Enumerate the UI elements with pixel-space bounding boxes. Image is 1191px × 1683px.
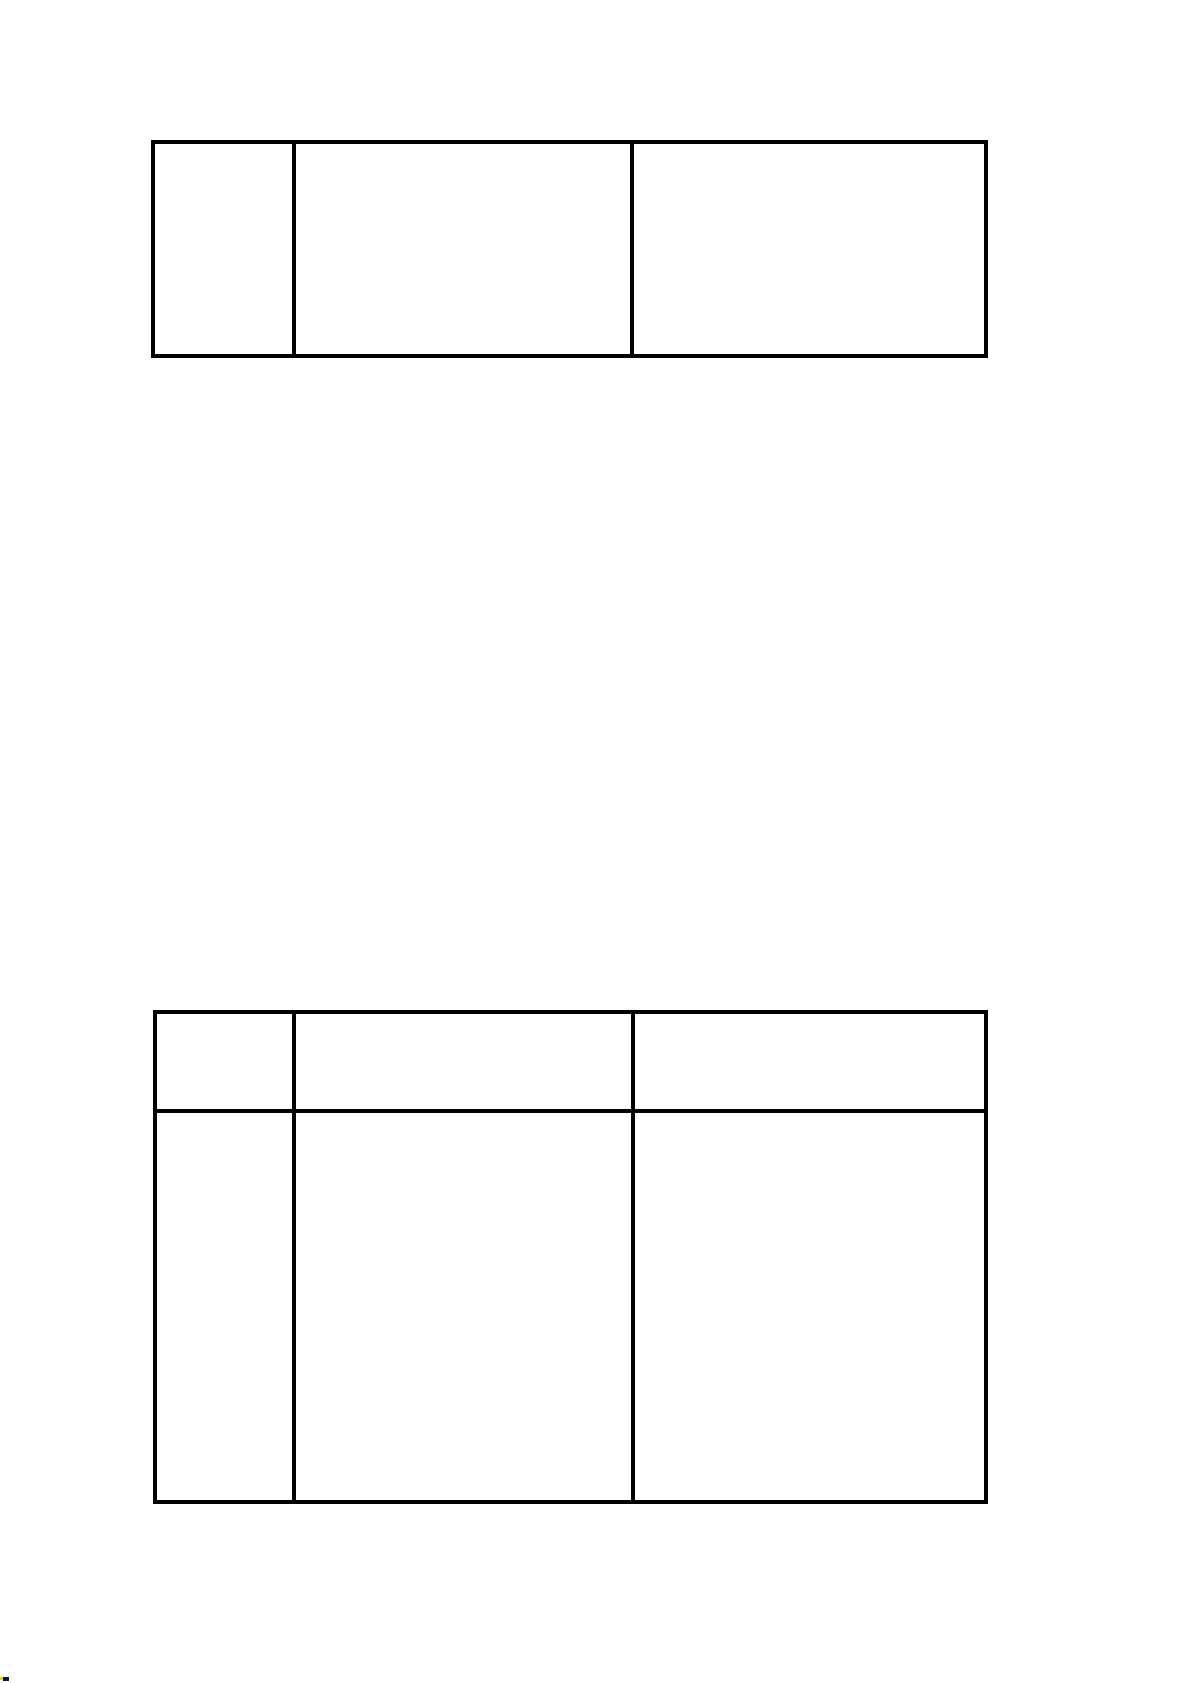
- document-page: [0, 0, 1191, 1683]
- table-cell: [296, 1113, 635, 1500]
- table-cell: [634, 144, 984, 354]
- table-header-cell: [296, 1014, 635, 1113]
- scan-artifact-navy-pixel: [3, 1677, 9, 1681]
- scan-artifact: [0, 1677, 9, 1681]
- bottom-table: [153, 1010, 988, 1504]
- table-cell: [155, 144, 296, 354]
- table-cell: [296, 144, 634, 354]
- table-header-cell: [157, 1014, 296, 1113]
- table-header-cell: [635, 1014, 984, 1113]
- table-cell: [635, 1113, 984, 1500]
- table-cell: [157, 1113, 296, 1500]
- top-table: [151, 140, 988, 358]
